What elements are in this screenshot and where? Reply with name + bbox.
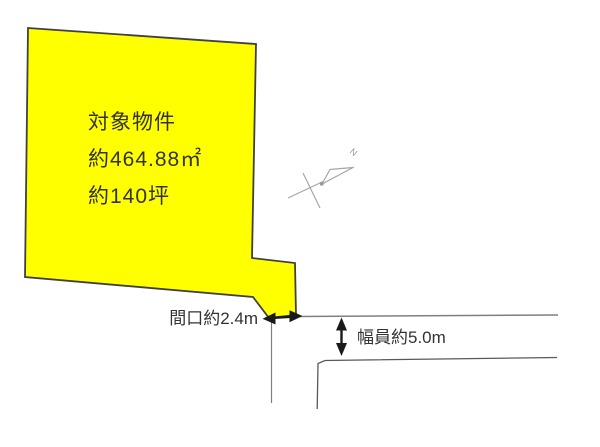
north-arrow-head [322, 168, 353, 185]
parcel-area-sqm: 約464.88㎡ [88, 141, 202, 178]
north-arrow-cross-line [303, 173, 320, 208]
frontage-dimension-label: 間口約2.4m [169, 310, 258, 327]
road-bottom-edge-line [317, 358, 557, 410]
north-arrow-pivot-dot [320, 182, 324, 186]
north-arrow [288, 167, 354, 208]
road-top-edge-line [298, 315, 558, 317]
road-width-dimension-arrow [336, 318, 347, 357]
plot-diagram: 対象物件 約464.88㎡ 約140坪 間口約2.4m 幅員約5.0m N [0, 0, 600, 447]
parcel-area-tsubo: 約140坪 [88, 178, 202, 215]
road-width-arrow-top-head [336, 318, 347, 331]
road-width-dimension-label: 幅員約5.0m [357, 329, 446, 346]
parcel-label: 対象物件 約464.88㎡ 約140坪 [88, 104, 202, 215]
parcel-title: 対象物件 [88, 104, 202, 141]
road-width-arrow-bottom-head [336, 343, 347, 356]
diagram-canvas [0, 0, 600, 447]
